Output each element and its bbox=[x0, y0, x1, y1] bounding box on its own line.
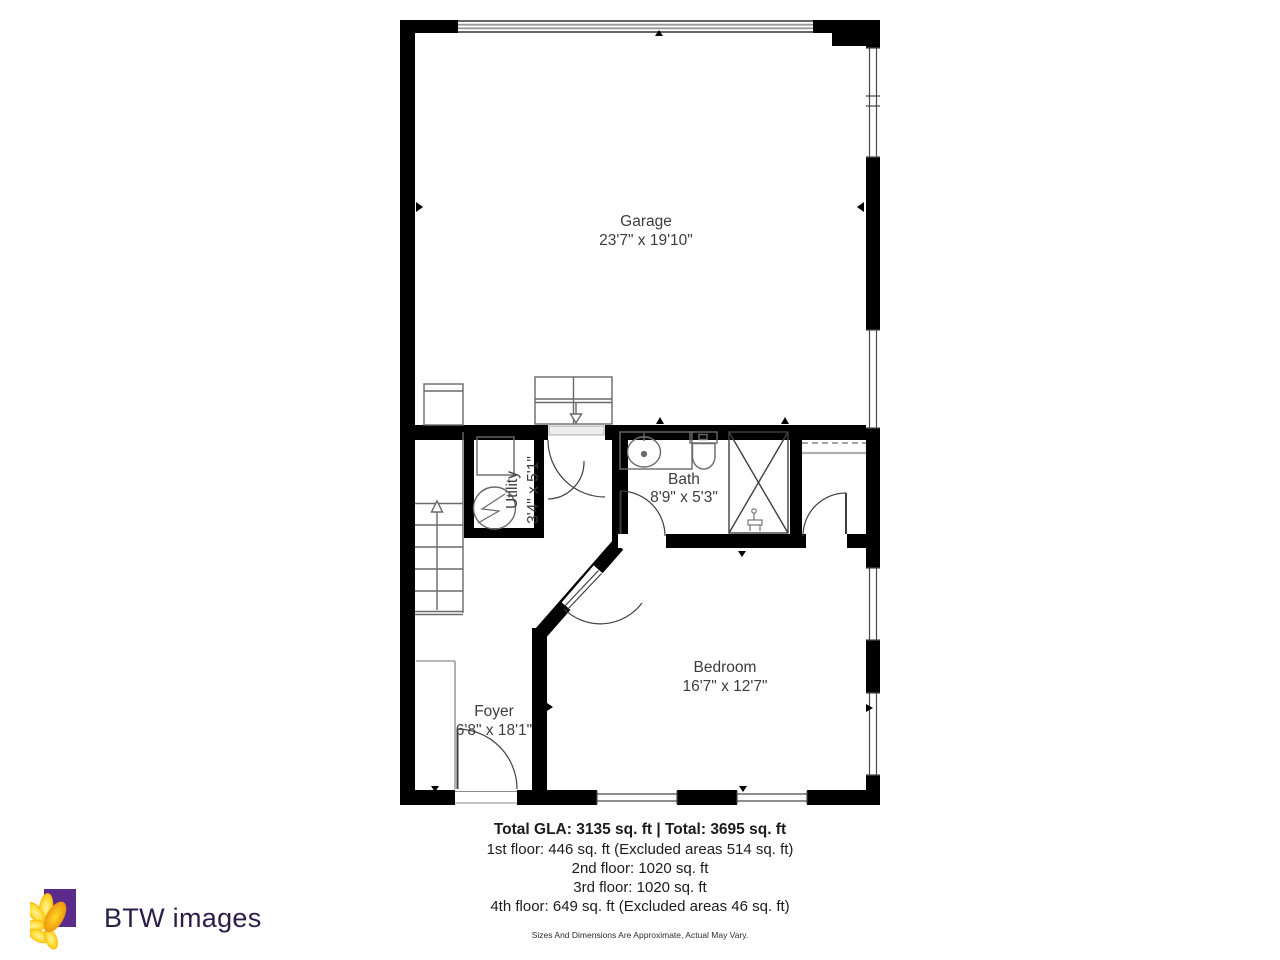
opening-bath-door bbox=[618, 534, 666, 548]
logo-text: BTW images bbox=[104, 903, 262, 934]
floor-line-1: 1st floor: 446 sq. ft (Excluded areas 51… bbox=[0, 840, 1280, 859]
utility-dims: 3'4" x 5'1" bbox=[525, 456, 542, 524]
floorplan-page: Garage 23'7" x 19'10" Utility 3'4" x 5'1… bbox=[0, 0, 1280, 960]
garage-label: Garage bbox=[620, 213, 672, 230]
stairs-lower bbox=[415, 432, 463, 615]
room-closet bbox=[802, 440, 866, 534]
room-bath bbox=[628, 440, 790, 534]
floor-line-2: 2nd floor: 1020 sq. ft bbox=[0, 859, 1280, 878]
room-foyer bbox=[415, 612, 532, 790]
bath-dims: 8'9" x 5'3" bbox=[650, 489, 718, 506]
stairs-door-threshold bbox=[549, 426, 604, 435]
opening-closet-door bbox=[806, 534, 847, 548]
hall-door-swing bbox=[548, 440, 605, 497]
foyer-dims: 6'8" x 18'1" bbox=[456, 722, 532, 739]
wall-right-seg2 bbox=[866, 157, 880, 330]
opening-window-bottom2 bbox=[737, 790, 807, 805]
wall-right-seg1 bbox=[866, 20, 880, 48]
bath-label: Bath bbox=[668, 471, 700, 488]
floorplan-drawing: Garage 23'7" x 19'10" Utility 3'4" x 5'1… bbox=[0, 0, 1280, 960]
wall-top-left bbox=[400, 20, 458, 33]
garage-dims: 23'7" x 19'10" bbox=[599, 232, 693, 249]
opening-window-right3 bbox=[866, 568, 880, 640]
btw-flower-icon bbox=[30, 886, 96, 950]
foyer-label: Foyer bbox=[474, 703, 514, 720]
bedroom-dims: 16'7" x 12'7" bbox=[682, 678, 767, 695]
garage-door bbox=[458, 20, 813, 33]
bedroom-label: Bedroom bbox=[694, 659, 757, 676]
garage-door-band bbox=[458, 20, 813, 33]
wall-right-seg4 bbox=[866, 640, 880, 693]
total-gla-line: Total GLA: 3135 sq. ft | Total: 3695 sq.… bbox=[0, 820, 1280, 839]
utility-label: Utility bbox=[504, 471, 521, 509]
opening-window-right2 bbox=[866, 330, 880, 428]
wall-bath-closet bbox=[790, 425, 802, 536]
utility-door-swing bbox=[548, 461, 584, 499]
wall-utility-left bbox=[464, 425, 474, 537]
btw-logo: BTW images bbox=[30, 886, 262, 950]
room-regions bbox=[415, 33, 866, 790]
opening-window-bottom1 bbox=[597, 790, 677, 805]
opening-window-right1 bbox=[866, 48, 880, 157]
stairs-up-arrow bbox=[432, 501, 443, 512]
wall-left bbox=[400, 20, 415, 805]
wall-foyer-bedroom bbox=[532, 628, 547, 790]
wall-utility-bottom bbox=[464, 528, 544, 538]
